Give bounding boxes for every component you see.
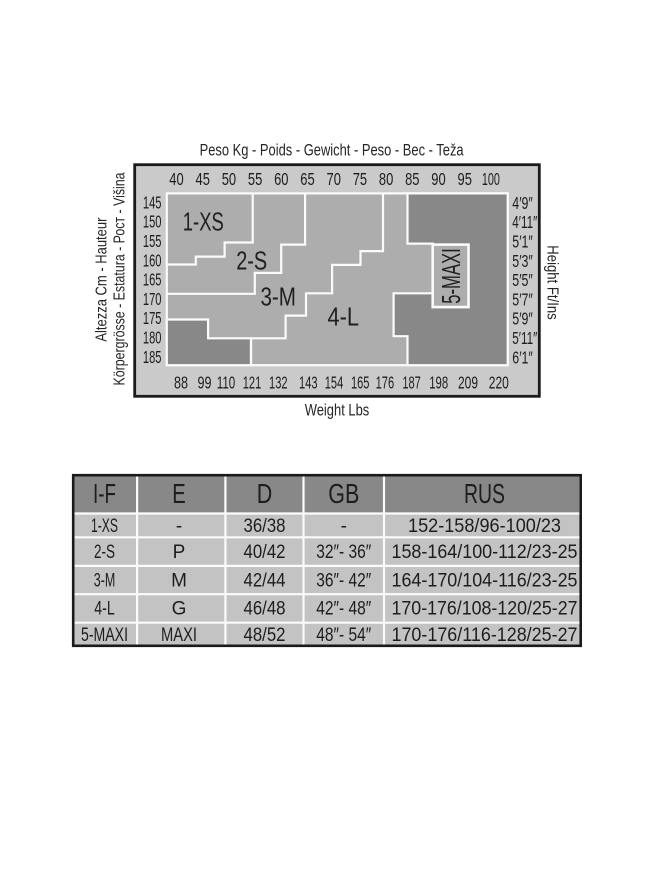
svg-text:132: 132: [269, 373, 288, 393]
svg-text:164-170/104-116/23-25: 164-170/104-116/23-25: [392, 570, 578, 591]
svg-text:-: -: [176, 516, 182, 537]
svg-text:55: 55: [248, 169, 262, 189]
svg-text:4′11″: 4′11″: [512, 212, 537, 232]
svg-text:175: 175: [143, 308, 162, 328]
svg-text:220: 220: [489, 373, 509, 393]
svg-text:143: 143: [299, 373, 318, 393]
svg-text:3-M: 3-M: [260, 282, 296, 312]
svg-text:40/42: 40/42: [244, 542, 286, 563]
svg-text:185: 185: [143, 347, 162, 367]
svg-text:170-176/108-120/25-27: 170-176/108-120/25-27: [392, 599, 578, 620]
svg-text:5′1″: 5′1″: [512, 232, 533, 252]
svg-text:50: 50: [222, 169, 237, 189]
svg-text:45: 45: [196, 169, 210, 189]
svg-text:198: 198: [429, 373, 448, 393]
svg-text:E: E: [172, 478, 186, 509]
svg-text:42″- 48″: 42″- 48″: [316, 599, 371, 620]
svg-text:100: 100: [482, 169, 500, 189]
svg-text:95: 95: [458, 169, 472, 189]
svg-text:4-L: 4-L: [94, 599, 115, 620]
svg-text:170-176/116-128/25-27: 170-176/116-128/25-27: [392, 625, 578, 646]
svg-text:5′11″: 5′11″: [512, 328, 537, 348]
svg-text:4′9″: 4′9″: [512, 193, 533, 213]
svg-text:Height Ft/Ins: Height Ft/Ins: [544, 245, 561, 320]
svg-text:36/38: 36/38: [244, 516, 286, 537]
svg-text:99: 99: [198, 373, 212, 393]
svg-text:G: G: [172, 599, 187, 620]
svg-text:P: P: [173, 542, 186, 563]
svg-text:155: 155: [143, 231, 162, 251]
svg-text:152-158/96-100/23: 152-158/96-100/23: [408, 516, 561, 537]
svg-text:5′5″: 5′5″: [512, 270, 533, 290]
svg-text:5′9″: 5′9″: [512, 309, 533, 329]
svg-text:121: 121: [243, 373, 262, 393]
svg-text:40: 40: [169, 169, 184, 189]
svg-text:-: -: [341, 516, 347, 537]
svg-text:5′3″: 5′3″: [512, 251, 533, 271]
svg-text:75: 75: [353, 169, 367, 189]
svg-text:MAXI: MAXI: [161, 625, 197, 646]
svg-text:46/48: 46/48: [244, 599, 286, 620]
svg-text:165: 165: [143, 270, 162, 290]
svg-text:5-MAXI: 5-MAXI: [81, 625, 128, 646]
svg-text:5′7″: 5′7″: [512, 289, 533, 309]
svg-text:4-L: 4-L: [328, 302, 360, 332]
svg-text:176: 176: [376, 373, 395, 393]
svg-text:3-M: 3-M: [94, 570, 116, 591]
svg-text:88: 88: [174, 373, 188, 393]
svg-text:32″- 36″: 32″- 36″: [316, 542, 371, 563]
svg-text:GB: GB: [328, 478, 359, 509]
svg-text:Peso Kg - Poids - Gewicht - Pe: Peso Kg - Poids - Gewicht - Peso - Bec -…: [200, 140, 464, 159]
svg-text:150: 150: [143, 212, 162, 232]
svg-text:180: 180: [143, 328, 162, 348]
svg-text:158-164/100-112/23-25: 158-164/100-112/23-25: [392, 542, 578, 563]
svg-text:RUS: RUS: [464, 478, 505, 509]
svg-text:60: 60: [274, 169, 289, 189]
svg-text:165: 165: [351, 373, 370, 393]
svg-text:36″- 42″: 36″- 42″: [316, 570, 371, 591]
svg-text:209: 209: [458, 373, 478, 393]
svg-text:48″- 54″: 48″- 54″: [316, 625, 371, 646]
svg-text:145: 145: [143, 192, 162, 212]
svg-text:Weight Lbs: Weight Lbs: [305, 401, 370, 419]
svg-text:160: 160: [143, 250, 162, 270]
svg-text:65: 65: [300, 169, 314, 189]
svg-text:154: 154: [325, 373, 344, 393]
svg-text:1-XS: 1-XS: [91, 516, 118, 537]
svg-text:42/44: 42/44: [244, 570, 286, 591]
svg-text:Körpergrösse - Estatura - Рост: Körpergrösse - Estatura - Рост - Višina: [112, 172, 129, 385]
svg-text:M: M: [171, 570, 187, 591]
svg-text:1-XS: 1-XS: [183, 206, 224, 236]
svg-text:6′1″: 6′1″: [512, 347, 533, 367]
svg-text:85: 85: [405, 169, 419, 189]
svg-text:I-F: I-F: [93, 478, 116, 509]
svg-text:2-S: 2-S: [94, 542, 115, 563]
svg-text:2-S: 2-S: [236, 246, 267, 276]
svg-text:170: 170: [143, 289, 162, 309]
svg-text:80: 80: [379, 169, 394, 189]
svg-text:110: 110: [217, 373, 236, 393]
svg-text:Altezza Cm - Hauteur: Altezza Cm - Hauteur: [94, 218, 111, 342]
svg-text:5-MAXI: 5-MAXI: [436, 248, 466, 304]
svg-text:48/52: 48/52: [244, 625, 286, 646]
svg-text:90: 90: [431, 169, 446, 189]
svg-text:70: 70: [327, 169, 342, 189]
svg-text:D: D: [257, 478, 273, 509]
svg-text:187: 187: [402, 373, 421, 393]
